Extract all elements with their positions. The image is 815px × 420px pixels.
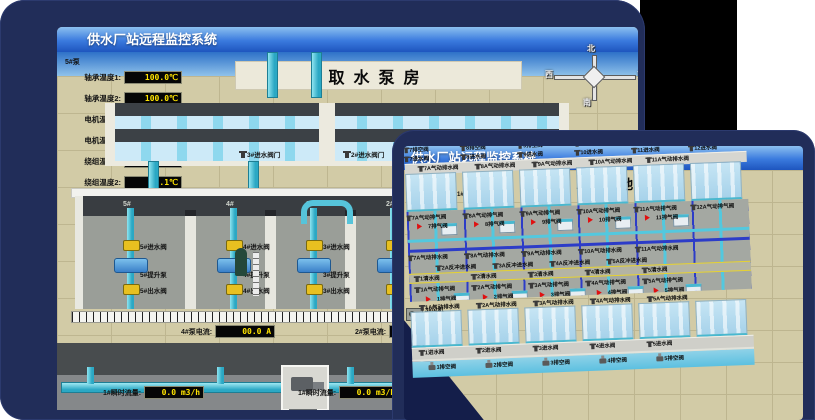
filter-cell [467, 308, 519, 346]
valve-label: 5进水阀 [653, 339, 673, 348]
pipe-stub [347, 367, 354, 384]
alarm-flag-icon [417, 223, 427, 229]
valve-label: 5A气动排气阀 [648, 275, 683, 284]
valve-label: 11进水阀 [637, 146, 660, 154]
bay-outlet-valve-label: 3#出水阀 [323, 285, 350, 295]
valve-label: 4清水阀 [591, 267, 611, 276]
valve-icon [428, 364, 435, 369]
valve-label: 2进水阀 [482, 345, 502, 354]
valve-icon [590, 159, 593, 165]
current-meter: 4#泵电流: 00.0 A [181, 325, 275, 338]
bay-inlet-valve-label: 5#进水阀 [140, 241, 167, 251]
valve-label: 3A反冲进水阀 [499, 260, 534, 269]
basin-water-channel [115, 116, 559, 129]
alarm-flag-icon [540, 292, 550, 298]
valve-label: 5排空阀 [664, 353, 684, 362]
valve-icon [635, 206, 638, 212]
valve-label: 9A气动排水阀 [527, 248, 562, 257]
pneumatic-drain-valve[interactable]: 7A气动排水阀 [408, 252, 465, 262]
valve-icon [586, 269, 589, 275]
flow-meter-display: 0.0 m3/h [339, 386, 399, 399]
outlet-valve-icon[interactable] [123, 284, 140, 295]
valve-icon [472, 274, 475, 280]
valve-label: 11A气动排水阀 [641, 244, 679, 253]
valve-label: 8A气动排水阀 [481, 161, 516, 170]
pump-room: 5# 5#进水阀 5#提升泵 5#出水阀 4# 4#进水阀 [75, 196, 397, 309]
scene-title: 取水泵房 [328, 64, 428, 88]
valve-icon [534, 300, 537, 306]
filter-cell [462, 170, 514, 210]
valve-icon [523, 251, 526, 257]
valve-icon [533, 161, 536, 167]
valve-icon [462, 154, 465, 160]
bay-inlet-valve-label: 4#进水阀 [243, 241, 270, 251]
valve-label: 8排气阀 [485, 219, 505, 228]
bay-lift-pump-label: 3#提升泵 [323, 269, 350, 279]
pipe-gallery: 7A气动排气阀8A气动排气阀9A气动排气阀10A气动排气阀11A气动排气阀12A… [407, 199, 752, 302]
valve-icon [656, 356, 663, 361]
inlet-valve[interactable]: 3#进水阀门 [241, 149, 280, 159]
valve-icon [420, 350, 423, 356]
valve-label: 8排空阀 [466, 146, 486, 152]
valve-label: 4进水阀 [596, 341, 616, 350]
valve-icon [529, 271, 532, 277]
valve-icon [647, 157, 650, 163]
pump-bay[interactable]: 2# [348, 196, 397, 309]
valve-label: 4A气动排气阀 [591, 278, 626, 287]
bay-inlet-valve-label: 3#进水阀 [323, 241, 350, 251]
valve-icon [477, 302, 480, 308]
valve-label: 4排空阀 [607, 356, 627, 365]
valve-icon [690, 146, 693, 151]
alarm-flag-icon [483, 294, 493, 300]
valve-label: 1排气阀 [437, 294, 457, 302]
valve-icon [464, 213, 467, 219]
valve-label: 12A气动排气阀 [696, 201, 734, 210]
valve-icon [437, 265, 440, 271]
flow-meter-label: 1#瞬时流量: [298, 388, 336, 398]
valve-label: 11A气动排气阀 [639, 204, 677, 213]
pneumatic-drain-valve[interactable]: 11A气动排水阀 [636, 243, 693, 253]
valve-label: 1A气动排气阀 [420, 284, 455, 293]
valve-label: 3A气动排气阀 [534, 280, 569, 289]
front-monitor-panel: 供水厂站远程监控系统 1#V滤池 1#水泵 2#水泵 [392, 130, 815, 420]
valve-icon [521, 211, 524, 217]
filter-cell [690, 161, 742, 201]
flow-meter-label: 1#瞬时流量: [103, 388, 141, 398]
valve-label: 2清水阀 [477, 272, 497, 281]
valve-icon [345, 151, 349, 158]
valve-icon [576, 149, 579, 155]
valve-label: 2排空阀 [493, 360, 513, 369]
filter-cell [405, 172, 457, 212]
front-window: 供水厂站远程监控系统 1#V滤池 1#水泵 2#水泵 [404, 146, 803, 420]
inlet-valve-label: 3#进水阀门 [247, 149, 280, 159]
alarm-flag-icon [654, 287, 664, 293]
valve-icon [648, 296, 651, 302]
valve-label: 3清水阀 [534, 269, 554, 278]
valve-icon [466, 253, 469, 259]
compass: 北 西 南 东 [549, 45, 638, 111]
valve-label: 7进水阀 [409, 154, 429, 163]
valve-label: 1清水阀 [420, 274, 440, 283]
valve-label: 3进水阀 [539, 343, 559, 352]
current-meter-display: 00.0 A [215, 325, 275, 338]
valve-label: 10A气动排水阀 [584, 246, 622, 255]
telemetry-row: 轴承温度1: 100.0℃ [59, 71, 182, 83]
pipe-arch [301, 200, 353, 224]
valve-label: 10进水阀 [580, 147, 603, 156]
valve-icon [407, 215, 410, 221]
bay-lift-pump-label: 5#提升泵 [140, 269, 167, 279]
current-meter-label: 2#泵电流: [355, 327, 386, 337]
operator-figure [235, 248, 247, 276]
valve-icon [633, 147, 636, 153]
telemetry-row: 绕组温度2: 18.1℃ [59, 176, 182, 188]
valve-icon [518, 146, 521, 148]
valve-label: 7排空阀 [409, 146, 429, 154]
valve-icon [494, 263, 497, 269]
valve-icon [476, 163, 479, 169]
valve-icon [473, 285, 476, 291]
valve-label: 11A气动排水阀 [652, 154, 690, 163]
compass-center-star [583, 66, 606, 89]
valve-icon [648, 341, 651, 347]
front-wall-ruler [71, 311, 405, 323]
valve-icon [608, 258, 611, 264]
alarm-flag-icon [474, 221, 484, 227]
valve-icon [416, 287, 419, 293]
valve-label: 1排空阀 [436, 362, 456, 371]
valve-label: 5清水阀 [648, 265, 668, 274]
current-meter-label: 4#泵电流: [181, 327, 212, 337]
filter-pool-complex: 7排空阀8排空阀9排空阀10排空阀11排空阀12排空阀 7进水阀8进水阀9进水阀… [404, 146, 762, 378]
bay-number: 5# [123, 201, 131, 208]
pump-no-label: 5#泵 [65, 57, 80, 67]
bay-number: 4# [226, 201, 234, 208]
telemetry-label: 绕组温度2: [59, 177, 124, 188]
valve-label: 1进水阀 [425, 348, 445, 357]
valve-icon [599, 358, 606, 363]
filter-cell [576, 165, 628, 205]
inlet-valve-icon[interactable] [306, 240, 323, 251]
pump-bay[interactable]: 5# 5#进水阀 5#提升泵 5#出水阀 [85, 196, 169, 309]
valve-icon [578, 208, 581, 214]
valve-label: 9进水阀 [523, 150, 543, 159]
valve-label: 8A气动排水阀 [470, 250, 505, 259]
valve-label: 9A气动排水阀 [538, 159, 573, 168]
pump-cabinet-base [289, 409, 317, 410]
valve-label: 3排空阀 [550, 358, 570, 367]
valve-label: 9A气动排气阀 [526, 208, 561, 217]
compass-west-label: 西 [545, 69, 553, 80]
valve-icon [477, 347, 480, 353]
pneumatic-drain-valve[interactable]: 10A气动排水阀 [579, 245, 636, 255]
filter-cell [633, 163, 685, 203]
valve-icon [636, 246, 639, 252]
compass-south-label: 南 [583, 97, 591, 108]
valve-icon [461, 146, 464, 151]
inlet-valve[interactable]: 2#进水阀门 [345, 149, 384, 159]
outlet-valve-icon[interactable] [226, 284, 243, 295]
valve-label: 10A气动排水阀 [595, 156, 633, 165]
valve-icon [542, 360, 549, 365]
outlet-valve-icon[interactable] [306, 284, 323, 295]
telemetry-label: 轴承温度1: [59, 72, 124, 83]
ladder [253, 252, 259, 296]
valve-label: 8进水阀 [466, 152, 486, 161]
alarm-flag-icon [597, 289, 607, 295]
valve-icon [534, 345, 537, 351]
valve-icon [530, 282, 533, 288]
valve-label: 2A反冲进水阀 [442, 262, 477, 271]
telemetry-value-display: 100.0℃ [124, 71, 182, 84]
valve-icon [421, 305, 424, 311]
alarm-flag-icon [645, 214, 655, 220]
alarm-flag-icon [588, 217, 598, 223]
valve-label: 11排气阀 [656, 213, 679, 222]
compass-east-label: 东 [637, 69, 638, 80]
valve-label: 7A气动排水阀 [413, 252, 448, 261]
valve-label: 10排气阀 [599, 215, 622, 224]
valve-label: 8A气动排气阀 [469, 210, 504, 219]
back-window-title: 供水厂站远程监控系统 [57, 32, 217, 47]
screen-cutout [640, 0, 737, 140]
pipe-stub [217, 367, 224, 384]
valve-icon [551, 261, 554, 267]
filter-cell [581, 303, 633, 341]
valve-label: 5A反冲进水阀 [612, 256, 647, 265]
valve-icon [519, 152, 522, 158]
inlet-valve-icon[interactable] [123, 240, 140, 251]
desktop-stage: 供水厂站远程监控系统 取水泵房 5#泵 轴承温度1: 100.0℃ 轴承温度2:… [0, 0, 815, 420]
alarm-flag-icon [531, 219, 541, 225]
valve-icon [644, 278, 647, 284]
filter-cell [524, 306, 576, 344]
filter-cell [410, 310, 462, 348]
valve-label: 2A气动排气阀 [477, 282, 512, 291]
filter-cell [695, 299, 747, 337]
inlet-valve-row: 3#进水阀门 2#进水阀门 1#进水阀门 [105, 85, 549, 109]
valve-icon [419, 166, 422, 172]
valve-icon [404, 147, 407, 153]
valve-icon [405, 156, 408, 162]
pneumatic-drain-valve[interactable]: 8A气动排水阀 [465, 250, 522, 260]
pneumatic-drain-valve[interactable]: 9A气动排水阀 [522, 247, 579, 257]
alarm-flag-icon [426, 296, 436, 302]
valve-icon [643, 267, 646, 273]
filter-cell [519, 168, 571, 208]
pipe-stub [87, 367, 94, 384]
flow-meter: 1#瞬时流量: 0.0 m3/h [103, 386, 204, 399]
inlet-valve-label: 2#进水阀门 [351, 149, 384, 159]
valve-icon [692, 204, 695, 210]
valve-icon [587, 280, 590, 286]
valve-icon [579, 248, 582, 254]
valve-label: 7A气动排气阀 [412, 212, 447, 221]
compass-north-label: 北 [587, 43, 595, 54]
valve-icon [241, 151, 245, 158]
valve-icon [415, 276, 418, 282]
valve-label: 7A气动排水阀 [424, 163, 459, 172]
valve-icon [485, 362, 492, 367]
basin-divider-wall [319, 103, 335, 161]
flow-meter-display: 0.0 m3/h [144, 386, 204, 399]
valve-label: 4A反冲进水阀 [555, 258, 590, 267]
valve-label: 10A气动排气阀 [582, 206, 620, 215]
bay-outlet-valve-label: 5#出水阀 [140, 285, 167, 295]
pump-bay[interactable]: 4# 4#进水阀 4#提升泵 4#出水阀 [188, 196, 272, 309]
valve-label: 9排气阀 [542, 217, 562, 226]
valve-icon [591, 298, 594, 304]
filter-cell [638, 301, 690, 339]
valve-label: 12进水阀 [694, 146, 717, 152]
flow-meter: 1#瞬时流量: 0.0 m3/h [298, 386, 399, 399]
valve-label: 7排气阀 [428, 221, 448, 230]
valve-icon [591, 343, 594, 349]
valve-icon [409, 255, 412, 261]
